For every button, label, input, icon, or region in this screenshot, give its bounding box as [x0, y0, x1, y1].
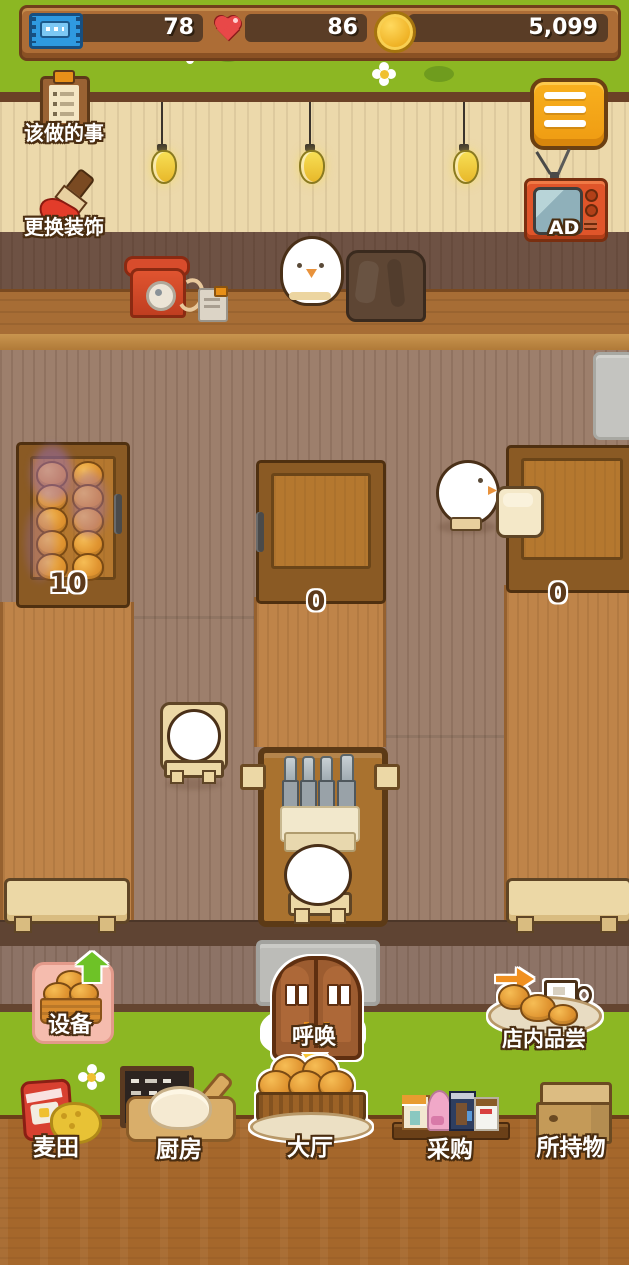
work-stool [284, 844, 352, 906]
menu-button[interactable] [530, 78, 608, 150]
bench-leg [98, 916, 116, 933]
mini-shop-icon [402, 1095, 430, 1130]
case-handle [114, 494, 122, 534]
ticket-count: 78 [78, 14, 203, 42]
display-count-middle: 0 [296, 586, 336, 617]
lamp-wire [463, 102, 465, 146]
grass-patch [424, 66, 454, 82]
ticket-icon [29, 13, 83, 49]
hanging-lamp [150, 102, 174, 182]
stool-leg [294, 908, 310, 924]
aisle-table-right [504, 585, 629, 920]
tab-inventory[interactable]: 所持物 [516, 1078, 626, 1170]
bread-icon [548, 1004, 578, 1026]
spoil-smoke [31, 445, 73, 503]
dough-tray [496, 486, 544, 538]
clipboard-clip [53, 70, 75, 84]
ticket-counter[interactable]: 78 [78, 14, 203, 42]
work-table-wing [240, 764, 266, 790]
coin-icon [374, 11, 416, 53]
bench-leg [516, 916, 534, 933]
case-handle [256, 512, 264, 552]
heart-count: 86 [245, 14, 367, 42]
lamp-bulb [299, 150, 325, 184]
bakery-game-screen: 78 86 5,099 该做的事 [0, 0, 629, 1265]
tab-inventory-label: 所持物 [518, 1136, 624, 1161]
equipment-button[interactable]: 设备 [32, 956, 114, 1046]
stool-leg [170, 770, 184, 784]
hanging-lamp [298, 102, 322, 182]
tv-antenna [535, 151, 551, 175]
todo-button[interactable]: 该做的事 [6, 66, 122, 150]
tab-hall[interactable]: 大厅 [248, 1054, 370, 1168]
bird-eye [297, 263, 302, 268]
tv-antenna [556, 149, 570, 176]
stool-leg [202, 770, 216, 784]
bird-eye [319, 263, 324, 268]
decorate-label: 更换装饰 [6, 216, 122, 238]
red-phone [122, 252, 200, 316]
ad-tv-button[interactable]: AD [524, 146, 604, 246]
coin-counter[interactable]: 5,099 [408, 14, 608, 42]
tab-purchase-label: 采购 [418, 1138, 482, 1163]
up-arrow-icon [76, 952, 108, 982]
lamp-wire [309, 102, 311, 146]
decorate-button[interactable]: 更换装饰 [6, 168, 122, 244]
hall-selected-icon [248, 1054, 370, 1138]
heart-icon [213, 13, 243, 41]
tab-wheat-field[interactable]: 麦田 [14, 1076, 102, 1168]
work-table-wing [374, 764, 400, 790]
bird-eye [478, 478, 483, 483]
floor-joint [128, 616, 256, 619]
call-label: 呼唤 [278, 1026, 350, 1050]
aisle-table-middle [254, 597, 386, 747]
hanging-lamp [452, 102, 476, 182]
bench-leg [14, 916, 32, 933]
display-case-middle[interactable] [256, 460, 386, 604]
floor-joint [380, 735, 506, 738]
display-count-left: 10 [40, 568, 96, 599]
counter-bird-character [280, 236, 344, 306]
bench-leg [600, 916, 618, 933]
ad-label: AD [546, 218, 582, 239]
heart-counter[interactable]: 86 [245, 14, 367, 42]
staff-bird-character [436, 460, 500, 530]
sparkle-flower [372, 62, 396, 86]
tab-kitchen-label: 厨房 [146, 1138, 212, 1163]
tasting-button[interactable]: 店内品尝 [484, 960, 604, 1058]
bird-feet [450, 517, 482, 531]
bird-feet [289, 292, 331, 300]
tab-purchase[interactable]: 采购 [390, 1086, 510, 1168]
dough-icon [148, 1086, 212, 1130]
display-count-right: 0 [538, 578, 578, 609]
lamp-wire [161, 102, 163, 146]
tab-kitchen[interactable]: 厨房 [122, 1062, 238, 1168]
tasting-label: 店内品尝 [488, 1028, 600, 1051]
mini-shop-icon [474, 1097, 499, 1131]
equipment-label: 设备 [34, 1014, 106, 1038]
lamp-bulb [453, 150, 479, 184]
aisle-table-left [0, 602, 134, 920]
lamp-bulb [151, 150, 177, 184]
mini-shop-icon [449, 1091, 476, 1131]
bread-loaf-bag [346, 250, 426, 322]
tab-wheat-field-label: 麦田 [16, 1136, 96, 1161]
stool-leg [330, 908, 346, 924]
coin-count: 5,099 [408, 14, 608, 42]
notepad [198, 288, 228, 322]
tab-hall-label: 大厅 [278, 1136, 342, 1161]
tv-knob [585, 189, 598, 202]
gray-mat [593, 352, 629, 440]
spoil-smoke [71, 471, 107, 537]
tv-speaker [584, 220, 597, 230]
tv-knob [585, 204, 598, 217]
todo-label: 该做的事 [6, 122, 122, 144]
